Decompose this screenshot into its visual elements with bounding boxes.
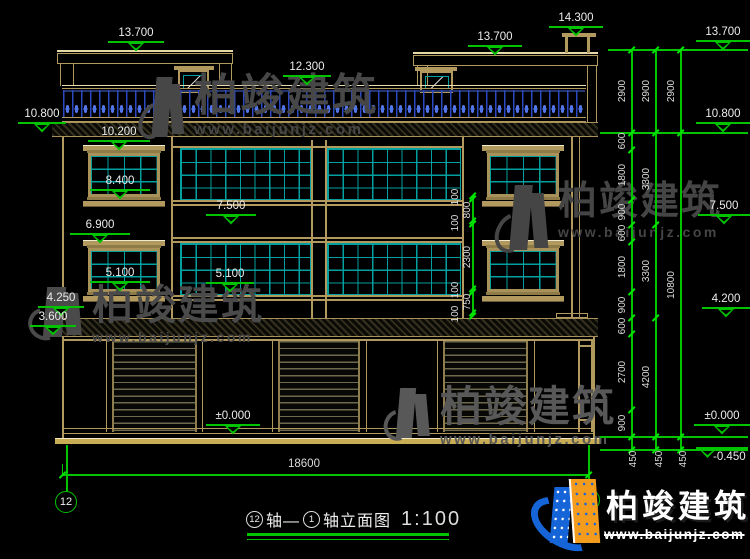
watermark-url: www.baijunjz.com xyxy=(194,121,378,138)
roller-door-1 xyxy=(112,341,197,432)
elevation-label: 5.100 xyxy=(106,267,135,280)
elevation-marker: 4.200 xyxy=(702,293,750,318)
elevation-marker: 12.300 xyxy=(283,61,331,86)
elevation-triangle xyxy=(222,284,239,293)
elevation-label: 10.200 xyxy=(101,126,136,139)
roof-left-slab xyxy=(57,53,233,64)
ground-column-cap xyxy=(578,345,593,347)
door2-jamb-left xyxy=(272,341,273,432)
logo-url-text: www.baijunjz.com xyxy=(604,527,745,542)
elevation-label: 7.500 xyxy=(217,200,246,213)
elevation-triangle xyxy=(112,191,129,200)
logo-brand-text: 柏竣建筑 xyxy=(606,481,750,527)
elevation-marker: 5.100 xyxy=(90,267,150,292)
elevation-triangle xyxy=(128,43,145,52)
dimension-value: 750 xyxy=(462,280,474,324)
elevation-label: 13.700 xyxy=(118,27,153,40)
dimension-value: 4200 xyxy=(641,355,653,399)
elevation-label: 13.700 xyxy=(477,31,512,44)
elevation-label: 7.500 xyxy=(710,200,739,213)
watermark: 柏竣建筑 www.baijunjz.com xyxy=(496,182,722,258)
elevation-marker: 10.800 xyxy=(18,108,66,133)
elevation-label: 5.100 xyxy=(216,268,245,281)
window-sill xyxy=(486,292,560,295)
dimension-value: 2900 xyxy=(617,69,629,113)
title-axis-bubble-to: 1 xyxy=(303,511,320,528)
dimension-value: 600 xyxy=(617,304,629,348)
ground-wall-left-edge xyxy=(62,337,64,438)
dim-chain-line-outer xyxy=(680,50,682,450)
watermark-brand: 柏竣建筑 xyxy=(440,386,616,429)
roof-right-slab xyxy=(413,55,598,66)
watermark: 柏竣建筑 www.baijunjz.com xyxy=(140,74,378,144)
dimension-value: 100 xyxy=(450,292,462,336)
dimension-value: 800 xyxy=(462,188,474,232)
window-band-3f-left xyxy=(180,148,311,200)
elevation-marker: 13.700 xyxy=(468,31,522,56)
elevation-marker: 5.100 xyxy=(206,268,254,293)
axis-line-left xyxy=(66,445,68,492)
elevation-label: ±0.000 xyxy=(704,410,739,423)
logo-building-orange-icon xyxy=(569,479,600,543)
elevation-triangle xyxy=(45,327,62,336)
dimension-value: 3300 xyxy=(641,157,653,201)
elevation-label: 10.800 xyxy=(24,108,59,121)
drawing-title: 12 轴— 1 轴立面图 1:100 xyxy=(246,507,461,531)
dim-chain-line-mid xyxy=(655,50,657,450)
elevation-label: 10.800 xyxy=(705,108,740,121)
elevation-marker: 8.400 xyxy=(90,175,150,200)
elevation-label: 4.250 xyxy=(47,292,76,305)
elevation-label: 6.900 xyxy=(86,219,115,232)
foundation-level-label: -0.450 xyxy=(713,451,746,463)
elevation-triangle xyxy=(92,235,109,244)
elevation-triangle xyxy=(225,426,242,435)
dimension-value: 2700 xyxy=(617,350,629,394)
watermark: 柏竣建筑 www.baijunjz.com xyxy=(384,386,616,448)
axis-bubble-left: 12 xyxy=(55,491,77,513)
elevation-marker: ±0.000 xyxy=(206,410,260,435)
elevation-label: 3.600 xyxy=(39,311,68,324)
elevation-marker: 10.800 xyxy=(696,108,750,133)
window-sill-2 xyxy=(482,296,564,302)
elevation-marker: 3.600 xyxy=(30,311,76,336)
watermark-logo-icon xyxy=(384,386,432,444)
window-sill-2 xyxy=(83,201,165,207)
elevation-triangle xyxy=(223,216,240,225)
elevation-label: 14.300 xyxy=(558,12,593,25)
elevation-triangle xyxy=(714,426,731,435)
elevation-triangle xyxy=(111,142,128,151)
window-band-3f-right xyxy=(327,148,461,200)
title-scale: 1:100 xyxy=(401,508,461,531)
band2-head-line-1 xyxy=(171,237,463,239)
door2-jamb-right xyxy=(366,341,367,432)
dimension-value: 10800 xyxy=(666,263,678,307)
roller-door-2 xyxy=(278,341,360,432)
door1-jamb-left xyxy=(106,341,107,432)
elevation-marker: 10.200 xyxy=(88,126,150,151)
elevation-triangle xyxy=(715,124,732,133)
watermark-url: www.baijunjz.com xyxy=(92,329,264,345)
elevation-drawing-canvas: 12 1 18600 -0.450 柏竣建筑 www.baijunjz.com … xyxy=(0,0,750,559)
elevation-marker: 7.500 xyxy=(206,200,256,225)
elevation-marker: ±0.000 xyxy=(694,410,750,435)
roof-left-column-left xyxy=(60,64,74,86)
axis-bubble-left-label: 12 xyxy=(60,496,72,508)
dim-chain-line-inner xyxy=(631,50,633,450)
elevation-marker: 13.700 xyxy=(696,26,750,51)
title-text-2: 轴立面图 xyxy=(323,507,391,531)
watermark-logo-icon xyxy=(496,182,550,258)
elevation-label: 8.400 xyxy=(106,175,135,188)
watermark-url: www.baijunjz.com xyxy=(440,431,616,448)
total-width-dim-line xyxy=(62,474,589,476)
total-width-label: 18600 xyxy=(288,458,320,470)
elevation-marker: 13.700 xyxy=(108,27,164,52)
title-axis-bubble-from: 12 xyxy=(246,511,263,528)
window-band-2f-right xyxy=(327,243,461,295)
elevation-triangle xyxy=(718,309,735,318)
dimension-value: 2900 xyxy=(666,69,678,113)
elevation-label: 12.300 xyxy=(289,61,324,74)
elevation-triangle xyxy=(487,47,504,56)
elevation-marker: 6.900 xyxy=(70,219,130,244)
elevation-label: 4.200 xyxy=(712,293,741,306)
elevation-triangle xyxy=(34,124,51,133)
elevation-triangle xyxy=(568,28,585,37)
elevation-label: 13.700 xyxy=(705,26,740,39)
elevation-triangle xyxy=(112,283,129,292)
watermark-url: www.baijunjz.com xyxy=(558,224,722,240)
title-underline-2 xyxy=(247,539,449,541)
stair-top-leg-left xyxy=(565,37,568,53)
dimension-value: 2300 xyxy=(462,235,474,279)
door1-jamb-right xyxy=(202,341,203,432)
elevation-triangle xyxy=(715,42,732,51)
elevation-label: ±0.000 xyxy=(215,410,250,423)
dimension-value: 3300 xyxy=(641,249,653,293)
dimension-value: 100 xyxy=(450,201,462,245)
curtain-center-pier-left xyxy=(311,140,313,318)
elevation-marker: 7.500 xyxy=(698,200,750,225)
elevation-triangle xyxy=(716,216,733,225)
dimension-value: 450 xyxy=(654,437,666,481)
dimension-value: 450 xyxy=(678,437,690,481)
title-text-1: 轴— xyxy=(266,507,300,531)
stair-top-leg-right xyxy=(587,37,590,53)
dimension-value: 2900 xyxy=(641,69,653,113)
company-logo: 柏竣建筑 www.baijunjz.com xyxy=(528,477,750,557)
elevation-marker: 14.300 xyxy=(549,12,603,37)
title-underline-1 xyxy=(247,533,449,536)
dimension-value: 450 xyxy=(628,437,640,481)
elevation-triangle xyxy=(299,77,316,86)
